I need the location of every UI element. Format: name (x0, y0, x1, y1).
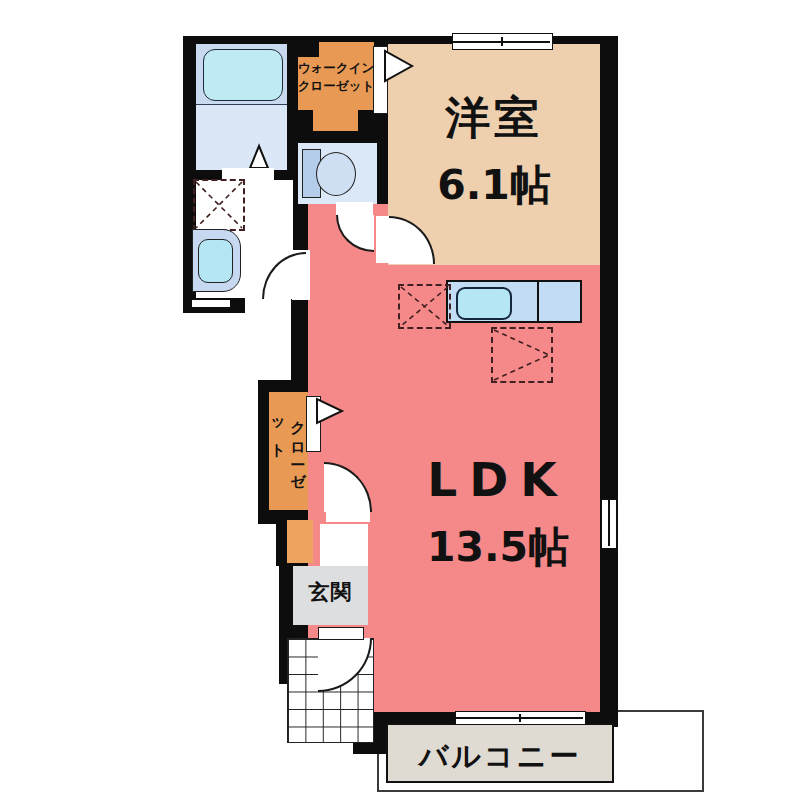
refrigerator-space (398, 284, 451, 329)
toilet-bowl (316, 152, 356, 196)
cupboard-space (491, 327, 553, 383)
closet-door-arrow-icon (316, 398, 344, 424)
western-room-window (452, 33, 553, 50)
boundary-line (612, 710, 704, 712)
bath-door-marker-icon (248, 145, 270, 170)
washroom-window (192, 300, 230, 307)
boundary-line (377, 790, 704, 792)
western-room-label: 洋室 (388, 88, 600, 148)
entrance-hall-upper (320, 524, 368, 566)
balcony-label: バルコニー (386, 737, 614, 777)
kitchen-counter (446, 280, 582, 323)
western-room-size: 6.1帖 (388, 158, 600, 213)
wall-right (598, 36, 618, 727)
boundary-line (702, 710, 704, 792)
kitchen-counter-divider (537, 282, 539, 321)
washing-machine-space (193, 179, 245, 231)
kitchen-sink (456, 287, 512, 320)
floorplan-canvas: 洋室 6.1帖 LDK 13.5帖 ウォークイン クローゼット クローゼット 玄… (0, 0, 800, 800)
western-door-gap (376, 216, 390, 263)
entrance-door-leaf (318, 627, 364, 640)
closet-label: クローゼット (266, 410, 308, 502)
shoe-cabinet (287, 520, 313, 563)
wic-label-line2: クローゼット (292, 78, 380, 95)
ldk-size: 13.5帖 (368, 520, 628, 575)
washbasin-bowl (198, 239, 233, 283)
entrance-label: 玄関 (293, 578, 368, 606)
bathtub (203, 49, 283, 101)
room-wic-bottom-tab (313, 110, 358, 131)
room-bathroom (196, 105, 287, 170)
wic-door-arrow-icon (384, 50, 414, 82)
room-wic-top-tab (319, 42, 374, 57)
wic-label-line1: ウォークイン (292, 60, 380, 77)
ldk-label: LDK (368, 452, 628, 507)
balcony-window (455, 711, 586, 725)
